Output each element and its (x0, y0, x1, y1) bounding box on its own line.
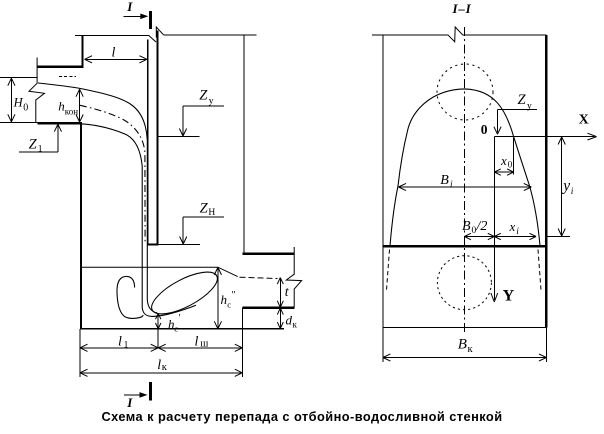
svg-text:l: l (157, 358, 161, 373)
svg-text:Y: Y (503, 287, 515, 304)
svg-text:ш: ш (200, 339, 208, 350)
svg-text:i: i (516, 227, 519, 237)
svg-text:к: к (293, 320, 298, 330)
svg-text:h: h (221, 292, 228, 307)
svg-text:1: 1 (124, 340, 129, 350)
svg-text:Z: Z (200, 201, 209, 217)
svg-text:Z: Z (29, 136, 38, 152)
svg-text:l: l (118, 334, 122, 349)
svg-text:B: B (440, 173, 449, 188)
svg-text:i: i (571, 187, 574, 197)
svg-text:0: 0 (481, 122, 488, 137)
svg-text:/2: /2 (476, 219, 488, 234)
svg-text:″: ″ (232, 290, 236, 301)
svg-text:к: к (468, 344, 474, 355)
svg-text:′: ′ (179, 313, 181, 324)
svg-text:I: I (126, 0, 133, 14)
svg-text:x: x (500, 153, 507, 168)
svg-text:x: x (509, 219, 516, 234)
svg-text:h: h (58, 99, 64, 114)
svg-text:B: B (462, 219, 471, 234)
svg-text:0: 0 (508, 160, 513, 170)
svg-text:Z: Z (199, 87, 208, 103)
svg-text:у: у (209, 96, 214, 106)
svg-text:0: 0 (23, 102, 28, 113)
svg-text:I–I: I–I (452, 1, 472, 16)
svg-text:y: y (561, 178, 570, 195)
svg-text:B: B (458, 337, 467, 353)
svg-text:l: l (195, 334, 199, 349)
svg-text:i: i (450, 180, 453, 190)
svg-text:d: d (286, 313, 293, 328)
svg-text:кон: кон (65, 107, 78, 117)
svg-text:Z: Z (518, 92, 527, 108)
svg-text:c: c (174, 323, 178, 333)
svg-text:1: 1 (38, 145, 43, 155)
svg-text:I: I (126, 395, 133, 410)
svg-text:H: H (13, 95, 24, 109)
svg-text:l: l (112, 46, 116, 61)
svg-text:X: X (579, 112, 589, 127)
svg-text:Схема к расчету перепада с отб: Схема к расчету перепада с отбойно-водос… (101, 409, 502, 424)
svg-text:к: к (162, 362, 168, 373)
